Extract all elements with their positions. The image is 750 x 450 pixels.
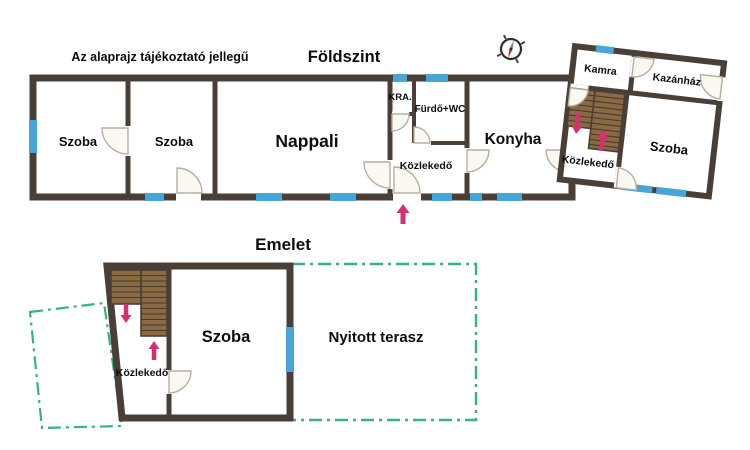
entrance-arrow-icon <box>397 204 410 224</box>
room-label-upper-szoba: Szoba <box>202 328 251 346</box>
upper-floor-roof-outline <box>30 303 122 428</box>
room-label-nappali: Nappali <box>275 131 338 151</box>
floor-plan-page: Az alaprajz tájékoztató jellegű Földszin… <box>0 0 750 450</box>
room-label-szoba1: Szoba <box>59 134 98 149</box>
ground-floor-title: Földszint <box>308 48 381 66</box>
upper-floor-title: Emelet <box>255 235 311 254</box>
room-label-konyha: Konyha <box>485 131 542 148</box>
disclaimer-text: Az alaprajz tájékoztató jellegű <box>71 50 248 64</box>
room-label-szoba2: Szoba <box>155 134 194 149</box>
compass-rose-icon <box>497 35 525 63</box>
room-label-terasz: Nyitott terasz <box>328 329 423 346</box>
room-label-kozlekedo: Közlekedő <box>400 160 453 172</box>
upper-floor-plan: Közlekedő Szoba Nyitott terasz <box>107 266 424 418</box>
upper-window-glyph <box>286 327 294 372</box>
room-label-furdo-wc: Fürdő+WC <box>415 104 466 115</box>
ground-floor-plan: Szoba Szoba Nappali KRA. Fürdő+WC Közlek… <box>29 74 576 224</box>
floor-plan-drawing: Az alaprajz tájékoztató jellegű Földszin… <box>0 0 750 450</box>
ground-floor-annex: Kamra Kazánház Közlekedő Szoba <box>559 43 728 201</box>
room-label-kra: KRA. <box>388 92 411 103</box>
room-label-upper-kozlekedo: Közlekedő <box>116 367 169 379</box>
